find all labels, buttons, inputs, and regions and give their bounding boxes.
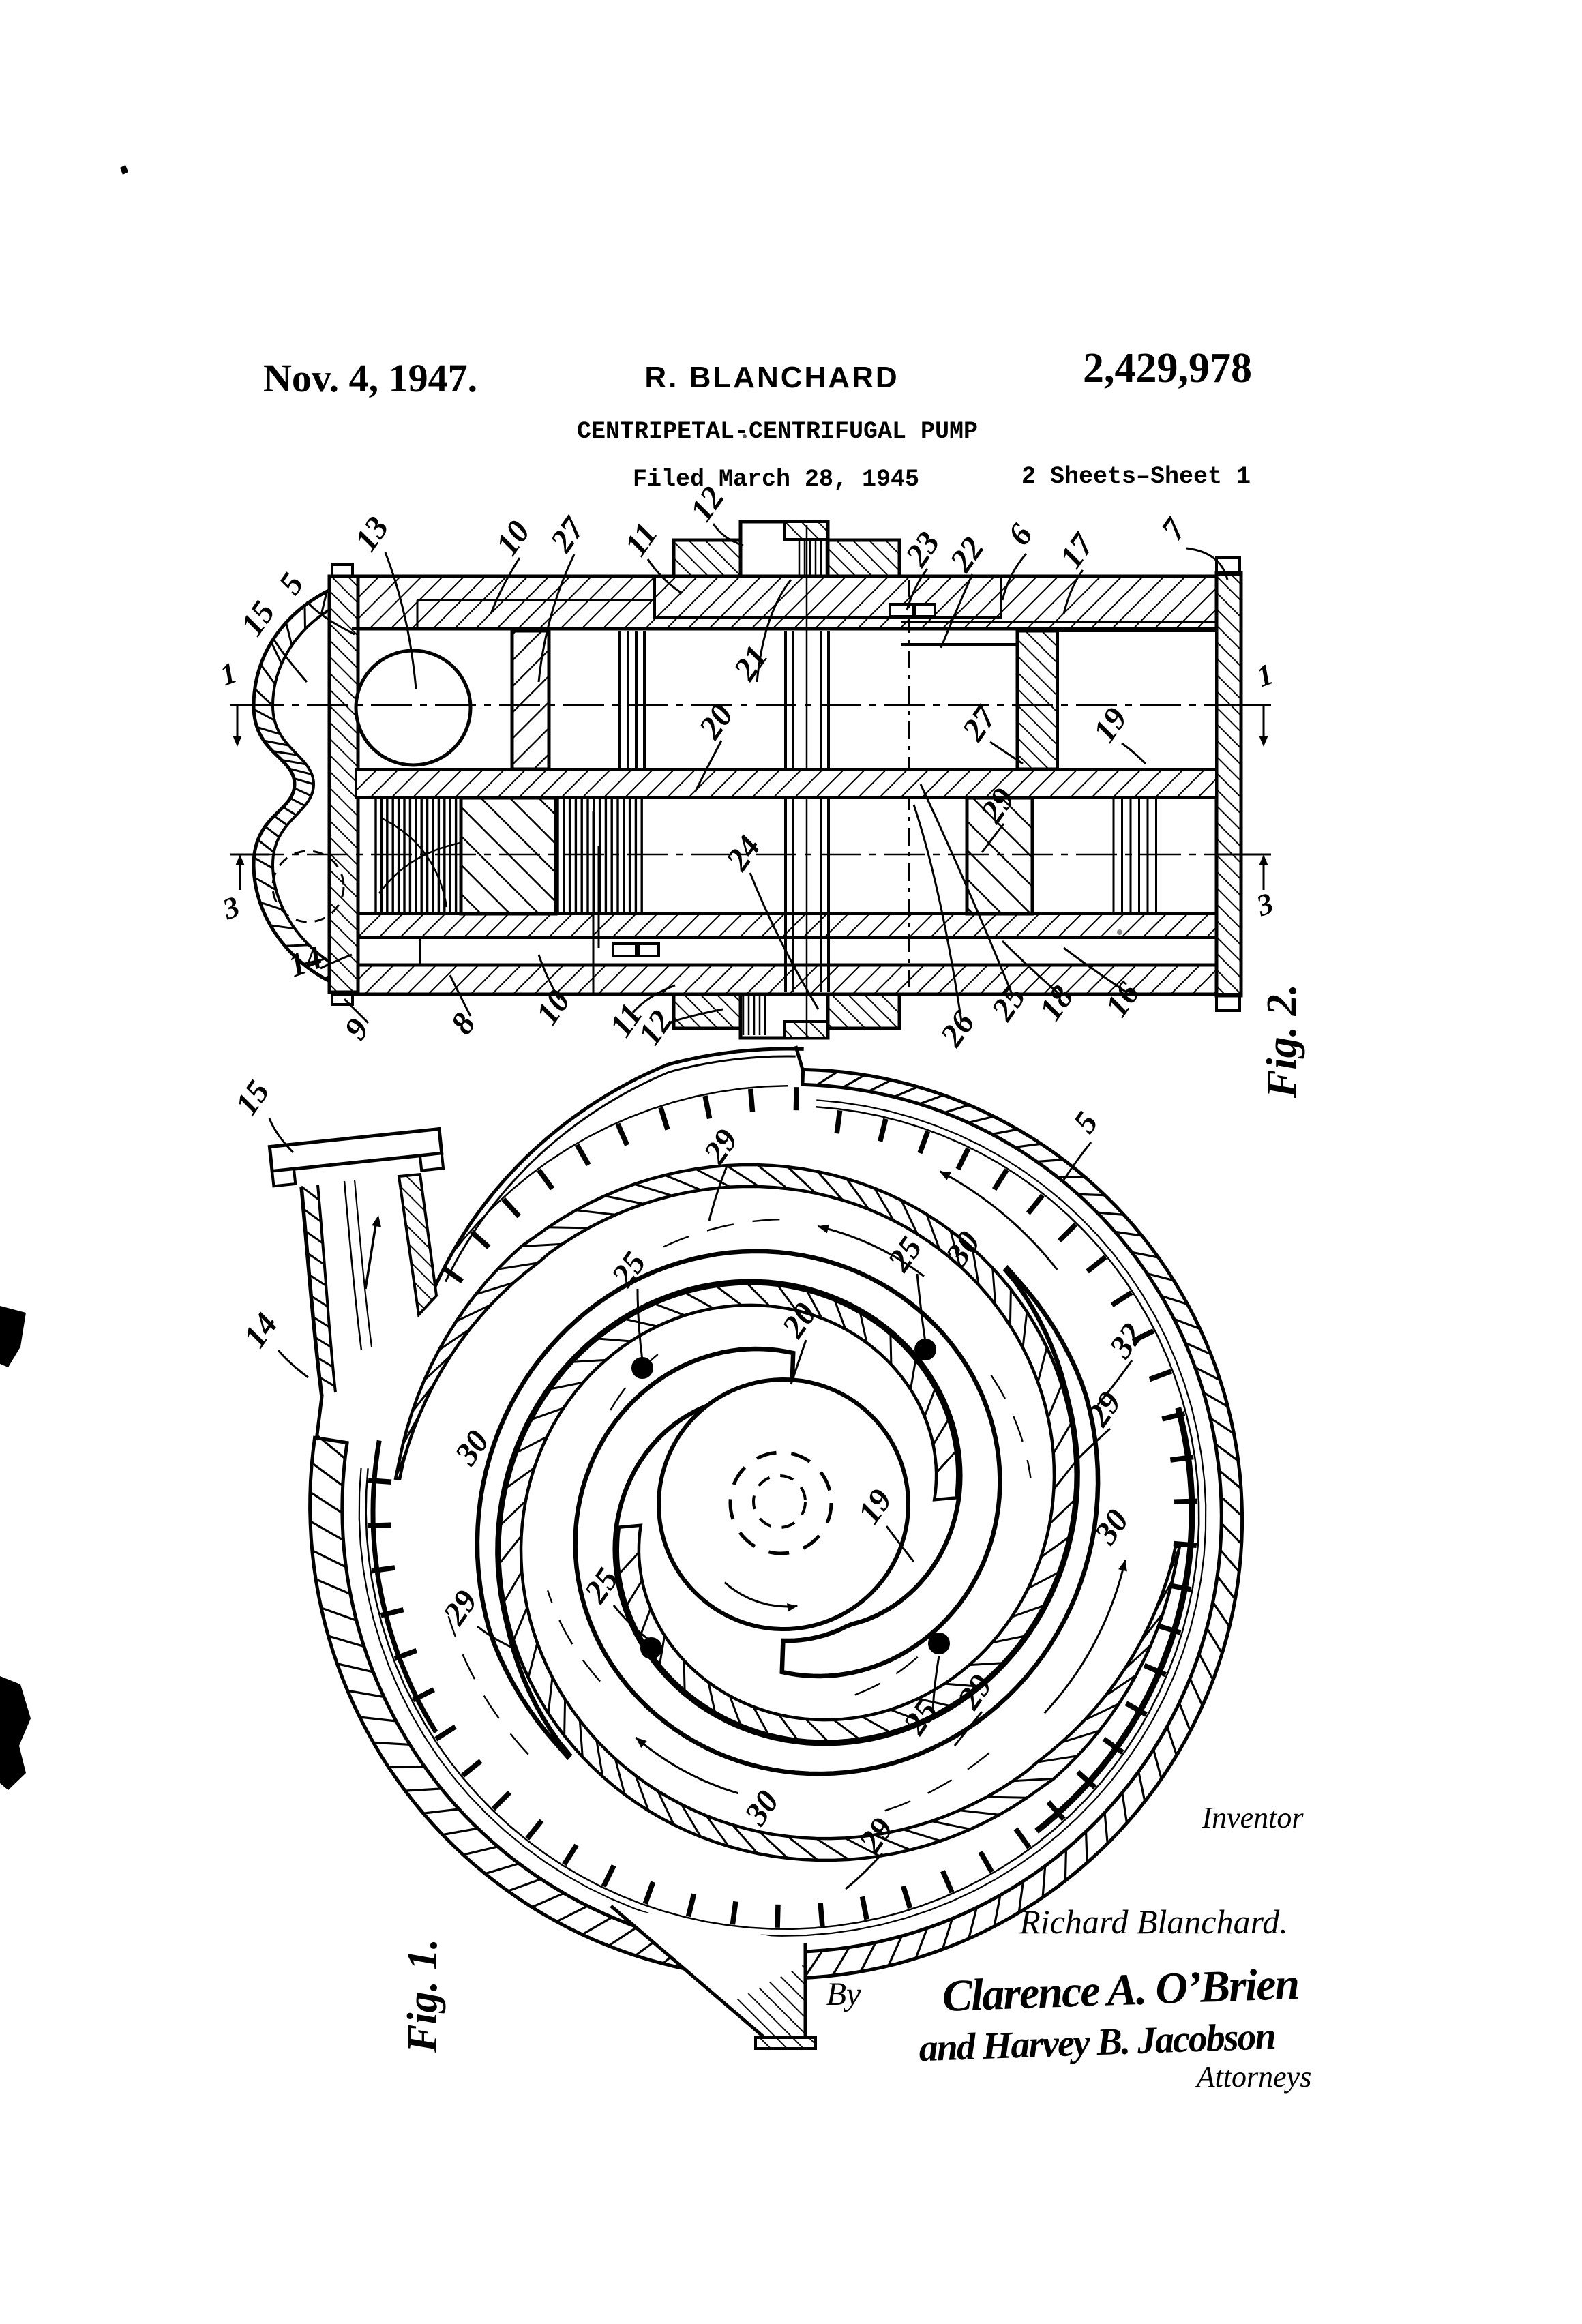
svg-text:2,429,978: 2,429,978: [1083, 345, 1252, 391]
svg-text:Filed March 28, 1945: Filed March 28, 1945: [633, 466, 919, 493]
svg-text:Fig. 2.: Fig. 2.: [1259, 984, 1305, 1099]
svg-text:Inventor: Inventor: [1201, 1801, 1304, 1834]
svg-text:2 Sheets–Sheet 1: 2 Sheets–Sheet 1: [1021, 463, 1251, 490]
svg-text:CENTRIPETAL-CENTRIFUGAL PUMP: CENTRIPETAL-CENTRIFUGAL PUMP: [577, 418, 978, 445]
svg-text:Nov. 4, 1947.: Nov. 4, 1947.: [263, 356, 477, 400]
svg-text:R. BLANCHARD: R. BLANCHARD: [644, 361, 899, 394]
svg-text:Attorneys: Attorneys: [1195, 2060, 1312, 2094]
svg-text:Fig. 1.: Fig. 1.: [400, 1939, 446, 2053]
svg-text:By: By: [826, 1976, 861, 2012]
svg-text:Richard Blanchard.: Richard Blanchard.: [1019, 1903, 1287, 1941]
